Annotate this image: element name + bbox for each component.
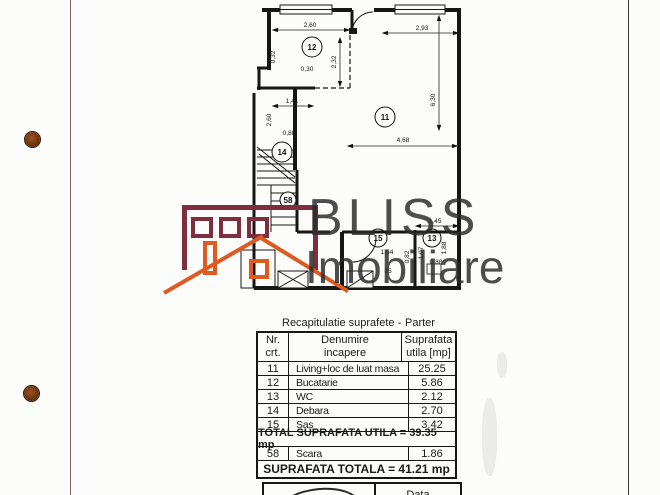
dimension-label: 0,32 [270,50,277,63]
row-area: 2.70 [409,405,455,417]
total-row: SUPRAFATA TOTALA = 41.21 mp [258,460,455,477]
room-number: 14 [278,148,287,157]
table-caption: Recapitulatie suprafete - Parter [256,317,458,331]
logo-window-icon [191,217,213,238]
header-nr: crt. [265,347,280,360]
row-nr: 13 [258,390,289,403]
row-name: WC [289,390,409,403]
row-area: 2.12 [409,391,455,403]
hole-punch [24,386,39,401]
page-edge-line-left [70,0,71,495]
table-row: 14 Debara 2.70 [258,403,455,417]
room-number: 12 [308,43,317,52]
room-number: 58 [284,196,293,205]
scan-smudge [482,398,497,476]
watermark-text-line2: Imobiliare [305,240,504,294]
row-area: 5.86 [409,377,455,389]
table-caption-right: Parter [405,317,435,329]
stamp-ellipse [278,485,361,495]
row-area: 25.25 [409,363,455,375]
stamp-cell [264,484,376,495]
row-nr: 58 [258,447,289,460]
logo-window-icon [219,217,241,238]
header-suprafata: utila [mp] [402,347,455,360]
dimension-label: 0,30 [301,66,314,73]
dimension-label: 4,68 [397,137,410,144]
dimension-label: 0,88 [283,130,296,137]
logo-small-square [249,259,269,279]
dimension-label: 2,60 [266,113,273,126]
header-nr: Nr. [265,334,280,347]
header-suprafata: Suprafata [402,334,455,347]
logo-chimney-icon [203,241,217,275]
row-nr: 11 [258,362,289,375]
header-denumire: Denumire [321,334,369,347]
dimension-label: 2,32 [331,55,338,68]
table-header-row: Nr. crt. Denumire incapere Suprafata uti… [258,333,455,361]
date-cell: Data [376,484,460,495]
table-caption-left: Recapitulatie suprafete - [282,317,401,329]
total-utila-row: TOTAL SUPRAFATA UTILA = 39.35 mp [258,431,455,446]
table-row-stairs: 58 Scara 1.86 [258,446,455,460]
dimension-label: 2,60 [304,22,317,29]
table-row: 12 Bucatarie 5.86 [258,375,455,389]
row-name: Bucatarie [289,376,409,389]
date-label: Data [406,489,429,495]
page-edge-line-right [628,0,629,495]
room-number: 11 [381,113,390,122]
dimension-label: 2,93 [416,25,429,32]
table-row: 11 Living+loc de luat masa 25.25 [258,361,455,375]
header-denumire: incapere [321,347,369,360]
watermark-text-line1: BLISS [308,188,480,248]
scan-smudge [497,352,507,378]
row-area: 1.86 [409,448,455,460]
row-nr: 14 [258,404,289,417]
scanned-document-page: 2,60 2,93 0,32 2,32 0,30 1,41 2,60 0,88 … [0,0,660,495]
hole-punch [25,132,40,147]
table-row: 13 WC 2.12 [258,389,455,403]
row-name: Debara [289,404,409,417]
row-name: Living+loc de luat masa [289,362,409,375]
row-nr: 12 [258,376,289,389]
dimension-label: 1,41 [286,98,299,105]
row-name: Scara [289,447,409,460]
area-table: Recapitulatie suprafete - Parter Nr. crt… [256,317,458,479]
dimension-label: 6,30 [430,93,437,106]
signature-block: Data [262,482,462,495]
